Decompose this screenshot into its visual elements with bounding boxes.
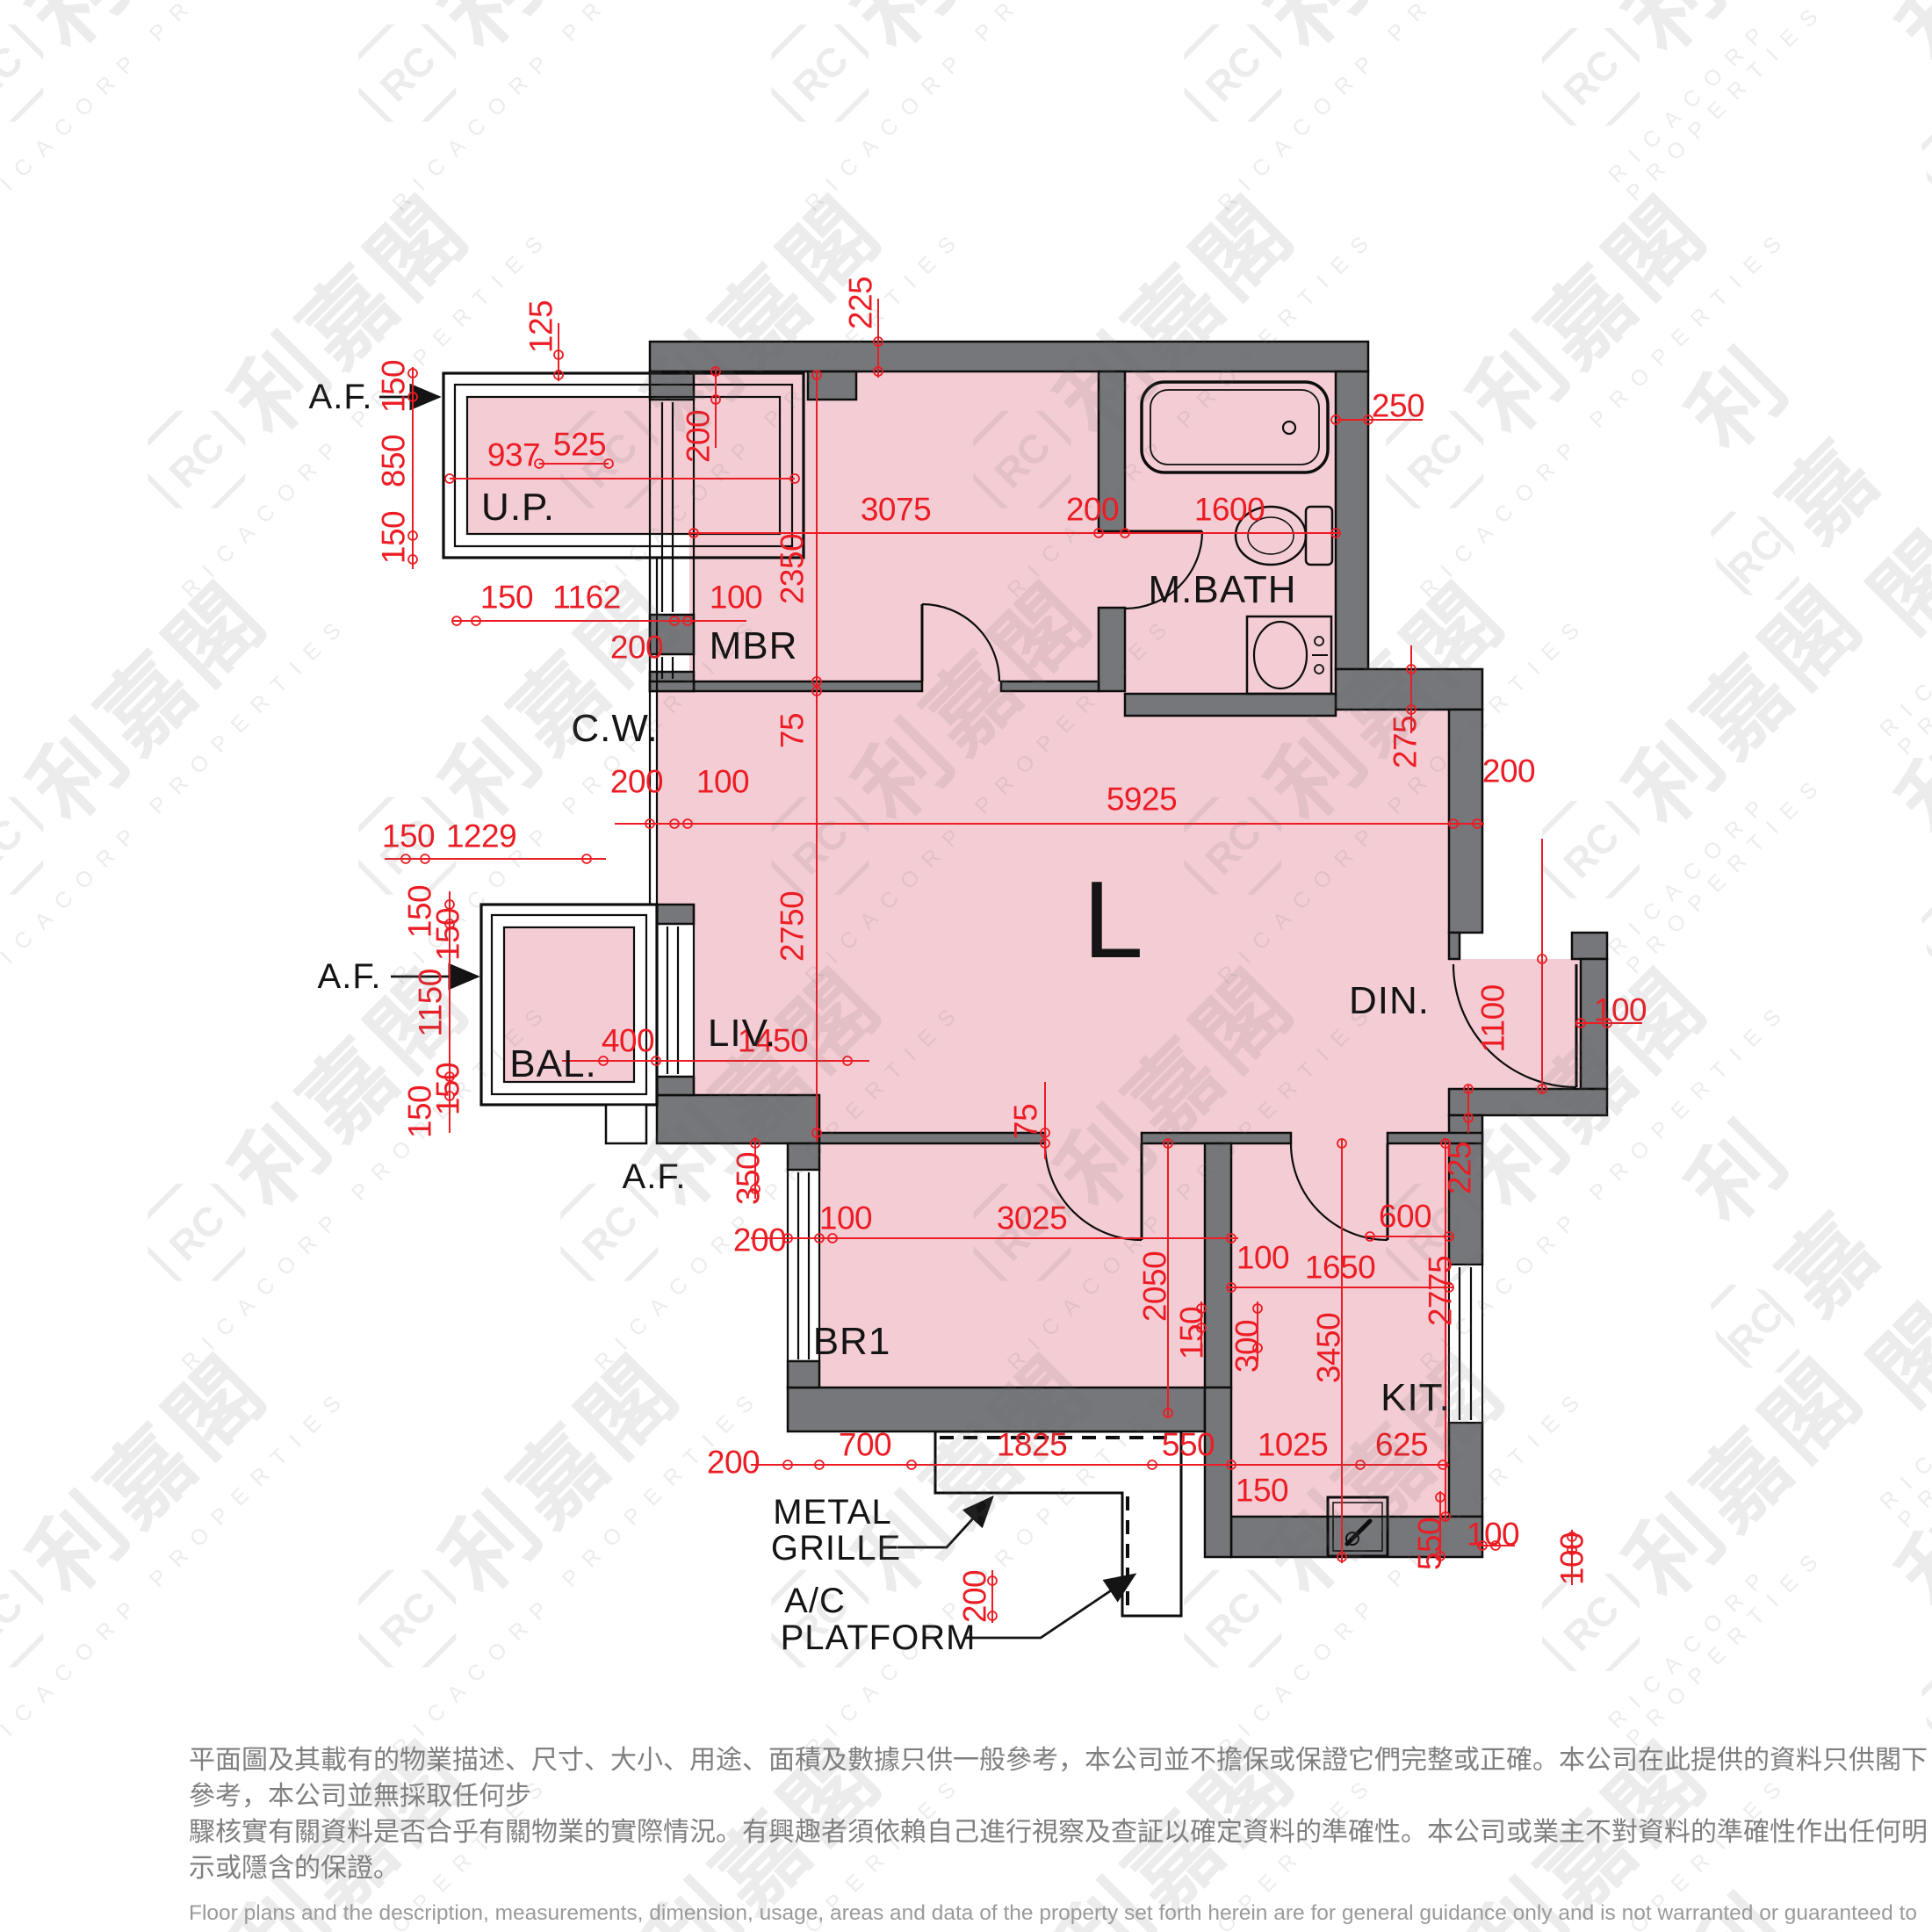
dimension-label: 2775: [1424, 1256, 1457, 1326]
dimension-label: 550: [1162, 1429, 1215, 1461]
annotation-grille: GRILLE: [771, 1531, 901, 1566]
dimension-label: 200: [610, 631, 663, 664]
dimension-label: 850: [378, 435, 410, 487]
dimension-label: 700: [839, 1429, 891, 1461]
dimension-label: 1100: [1477, 984, 1510, 1053]
dimension-label: 1025: [1258, 1429, 1328, 1461]
dimension-label: 2050: [1139, 1251, 1171, 1322]
dimension-label: 100: [1594, 994, 1647, 1027]
dimension-label: 150: [378, 360, 410, 413]
dimension-label: 1162: [552, 581, 621, 614]
dimension-label: 300: [1231, 1320, 1264, 1373]
dimension-label: 3450: [1313, 1313, 1345, 1383]
dimension-label: 125: [525, 300, 558, 353]
dimension-label: 1600: [1194, 494, 1265, 526]
dimension-label: 2350: [776, 534, 809, 604]
annotation-af-1: A.F.: [309, 379, 373, 415]
dimension-label: 5925: [1107, 783, 1177, 816]
dimension-label: 75: [1010, 1104, 1042, 1139]
dimension-label: 100: [819, 1202, 872, 1235]
dimension-label: 150: [404, 1085, 436, 1138]
dimension-label: 100: [1467, 1518, 1519, 1551]
dimension-label: 150: [378, 511, 410, 564]
floorplan-page: 9375251251508501502252003075200160025015…: [0, 0, 1932, 1932]
dimension-label: 200: [1482, 755, 1535, 788]
room-label-up: U.P.: [481, 488, 555, 527]
dimension-label: 150: [480, 581, 533, 614]
dimension-label: 600: [1379, 1200, 1431, 1233]
room-label-mbr: MBR: [710, 627, 798, 666]
dimension-label: 200: [682, 410, 715, 463]
dimension-label: 200: [610, 766, 663, 798]
dimension-label: 100: [696, 766, 749, 798]
annotation-metal: METAL: [773, 1495, 891, 1530]
dimension-label: 1229: [446, 820, 516, 853]
dimension-label: 200: [733, 1224, 786, 1257]
dimension-label: 150: [1236, 1474, 1288, 1507]
dimension-label: 1150: [415, 969, 447, 1037]
dimension-label: 100: [1236, 1242, 1289, 1274]
dimension-label: 250: [1372, 390, 1424, 422]
dimension-label: 200: [1066, 494, 1119, 526]
dimension-label: 400: [602, 1025, 654, 1057]
room-label-br1: BR1: [813, 1323, 891, 1361]
annotation-af-3: A.F.: [623, 1159, 687, 1194]
dimension-label: 550: [1414, 1517, 1446, 1570]
disclaimer-zh-line1: 平面圖及其載有的物業描述、尺寸、大小、用途、面積及數據只供一般參考，本公司並不擔…: [189, 1742, 1932, 1814]
dimension-label: 150: [1176, 1307, 1208, 1359]
disclaimer-zh-line2: 驟核實有關資料是否合乎有關物業的實際情況。有興趣者須依賴自己進行視察及查証以確定…: [189, 1814, 1932, 1886]
dimension-label: 200: [707, 1446, 760, 1479]
dimension-label: 150: [382, 820, 435, 853]
dimension-label: 100: [710, 581, 762, 614]
disclaimer: 平面圖及其載有的物業描述、尺寸、大小、用途、面積及數據只供一般參考，本公司並不擔…: [189, 1742, 1932, 1932]
dimension-label: 100: [1556, 1532, 1589, 1585]
dimension-label: 3025: [997, 1202, 1067, 1235]
annotation-af-2: A.F.: [318, 959, 382, 994]
af-step: [606, 1105, 646, 1143]
room-label-liv: LIV.: [708, 1014, 776, 1053]
dimension-label: 225: [845, 277, 877, 329]
room-label-din: DIN.: [1349, 982, 1430, 1020]
room-label-kit: KIT.: [1381, 1379, 1451, 1417]
annotation-ac: A/C: [784, 1583, 846, 1618]
dimension-label: 1825: [997, 1429, 1067, 1461]
room-label-unit-letter: L: [1083, 866, 1144, 975]
dimension-label: 525: [553, 429, 606, 461]
dimension-label: 3075: [861, 494, 931, 526]
dimension-label: 350: [732, 1152, 765, 1205]
room-label-cw: C.W.: [571, 710, 658, 748]
room-label-bal: BAL.: [509, 1045, 596, 1084]
dimension-label: 2750: [776, 891, 809, 962]
room-label-mbath: M.BATH: [1149, 571, 1297, 609]
dimension-label: 150: [432, 908, 465, 961]
dimension-label: 200: [959, 1570, 991, 1623]
disclaimer-en-line1: Floor plans and the description, measure…: [189, 1899, 1932, 1932]
dimension-label: 937: [487, 439, 540, 472]
dimension-label: 1650: [1305, 1251, 1375, 1284]
dimension-label: 225: [1444, 1142, 1476, 1194]
dimension-label: 275: [1389, 716, 1422, 768]
dimension-label: 625: [1375, 1429, 1428, 1461]
annotation-platform: PLATFORM: [781, 1620, 977, 1655]
dimension-label: 75: [776, 713, 809, 748]
metal-grille-arrow: [898, 1497, 992, 1547]
